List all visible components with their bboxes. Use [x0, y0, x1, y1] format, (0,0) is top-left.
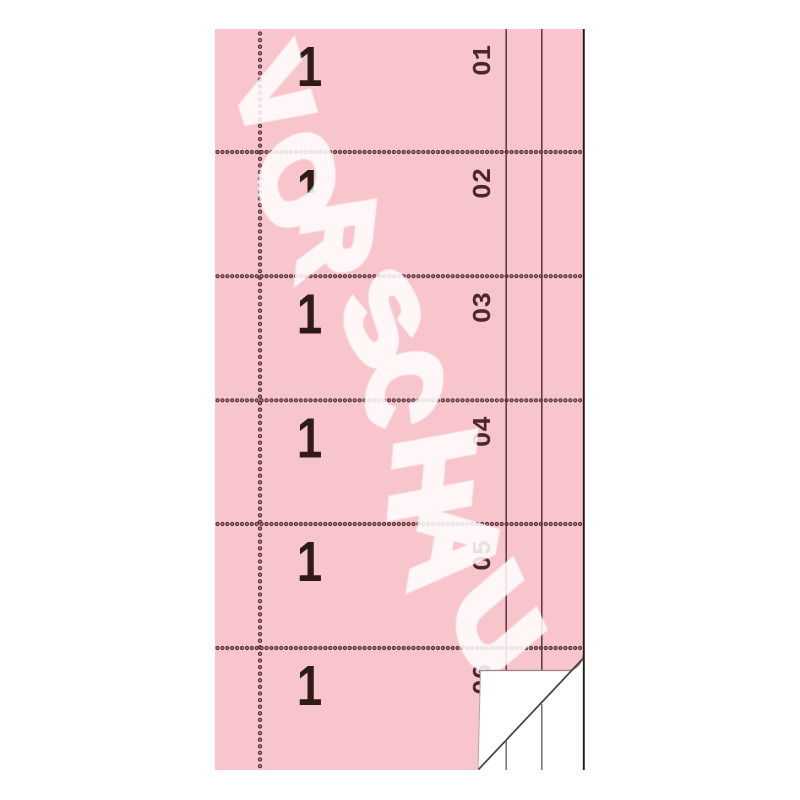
- svg-text:03: 03: [468, 292, 498, 323]
- svg-text:1: 1: [297, 529, 322, 593]
- svg-text:1: 1: [297, 406, 322, 470]
- svg-text:C: C: [344, 346, 464, 430]
- svg-text:01: 01: [468, 45, 498, 76]
- svg-text:1: 1: [297, 653, 322, 717]
- svg-text:02: 02: [468, 168, 498, 199]
- svg-text:1: 1: [297, 281, 322, 345]
